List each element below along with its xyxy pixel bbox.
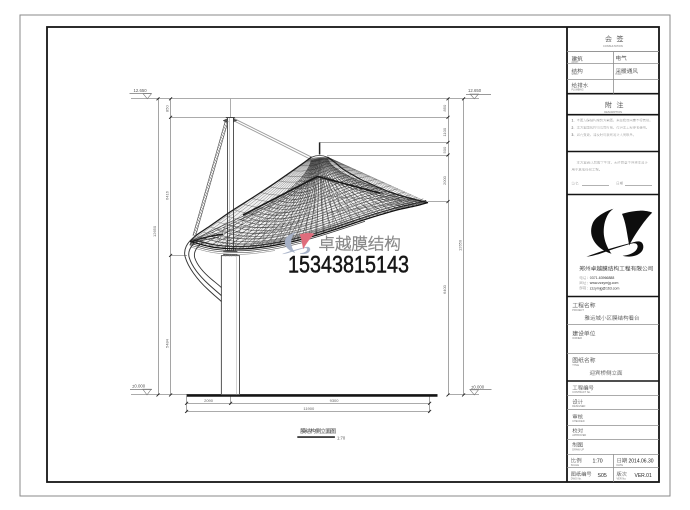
svg-text:3: 3 xyxy=(572,133,574,137)
svg-text:12650: 12650 xyxy=(457,239,462,251)
svg-text:VER No.: VER No. xyxy=(617,477,627,480)
svg-text:PLUMBING: PLUMBING xyxy=(572,90,584,92)
svg-text:www.zzzymjg.com: www.zzzymjg.com xyxy=(590,281,619,285)
svg-text:6416: 6416 xyxy=(164,190,169,200)
svg-text:850: 850 xyxy=(442,104,447,111)
svg-text:STRU.: STRU. xyxy=(572,74,579,76)
svg-text:2000: 2000 xyxy=(442,175,447,185)
svg-text:±0.000: ±0.000 xyxy=(132,384,146,389)
svg-text:500: 500 xyxy=(442,146,447,153)
svg-text:PROJECT: PROJECT xyxy=(572,309,584,312)
svg-text:DESIGNED: DESIGNED xyxy=(572,405,585,408)
svg-text:DRAW UP: DRAW UP xyxy=(572,448,584,451)
svg-text:6400: 6400 xyxy=(442,284,447,294)
svg-text:1: 1 xyxy=(572,119,574,123)
svg-text:OWNER: OWNER xyxy=(572,337,582,340)
svg-text:12.650: 12.650 xyxy=(468,88,482,93)
svg-text:DESCRIPTION: DESCRIPTION xyxy=(604,110,622,114)
svg-text:CONTRACT No.: CONTRACT No. xyxy=(572,391,591,394)
svg-text:DATE: DATE xyxy=(617,464,624,467)
svg-text:0371-63966888: 0371-63966888 xyxy=(590,276,615,280)
svg-text:±0.000: ±0.000 xyxy=(471,384,485,389)
svg-text:DWG No.: DWG No. xyxy=(571,477,582,480)
svg-text:850: 850 xyxy=(164,105,169,112)
svg-text:zzzymjg@163.com: zzzymjg@163.com xyxy=(590,286,620,290)
svg-text:2090: 2090 xyxy=(204,398,214,403)
svg-text:12.650: 12.650 xyxy=(134,88,148,93)
svg-text:5484: 5484 xyxy=(164,338,169,348)
svg-text:SCALE: SCALE xyxy=(571,464,580,467)
svg-text:2014.06.30: 2014.06.30 xyxy=(629,458,654,464)
svg-text:1:70: 1:70 xyxy=(593,458,603,464)
svg-text:CONSULTATION: CONSULTATION xyxy=(603,44,623,48)
svg-text:S05: S05 xyxy=(598,473,607,479)
svg-text:TITLE: TITLE xyxy=(572,364,579,367)
svg-text:APPROVED: APPROVED xyxy=(572,434,586,437)
svg-text:VER.01: VER.01 xyxy=(635,473,652,479)
svg-text:ARCH.: ARCH. xyxy=(572,61,580,64)
svg-text:CHECKED: CHECKED xyxy=(572,420,584,423)
svg-text:12650: 12650 xyxy=(152,225,157,237)
svg-text:2: 2 xyxy=(572,126,574,130)
svg-text:11900: 11900 xyxy=(303,406,315,411)
svg-text:1100: 1100 xyxy=(442,127,447,136)
svg-text:9300: 9300 xyxy=(330,398,340,403)
svg-text:15343815143: 15343815143 xyxy=(288,252,409,279)
svg-text:1:70: 1:70 xyxy=(337,435,346,440)
svg-text:HVAC: HVAC xyxy=(616,73,623,76)
